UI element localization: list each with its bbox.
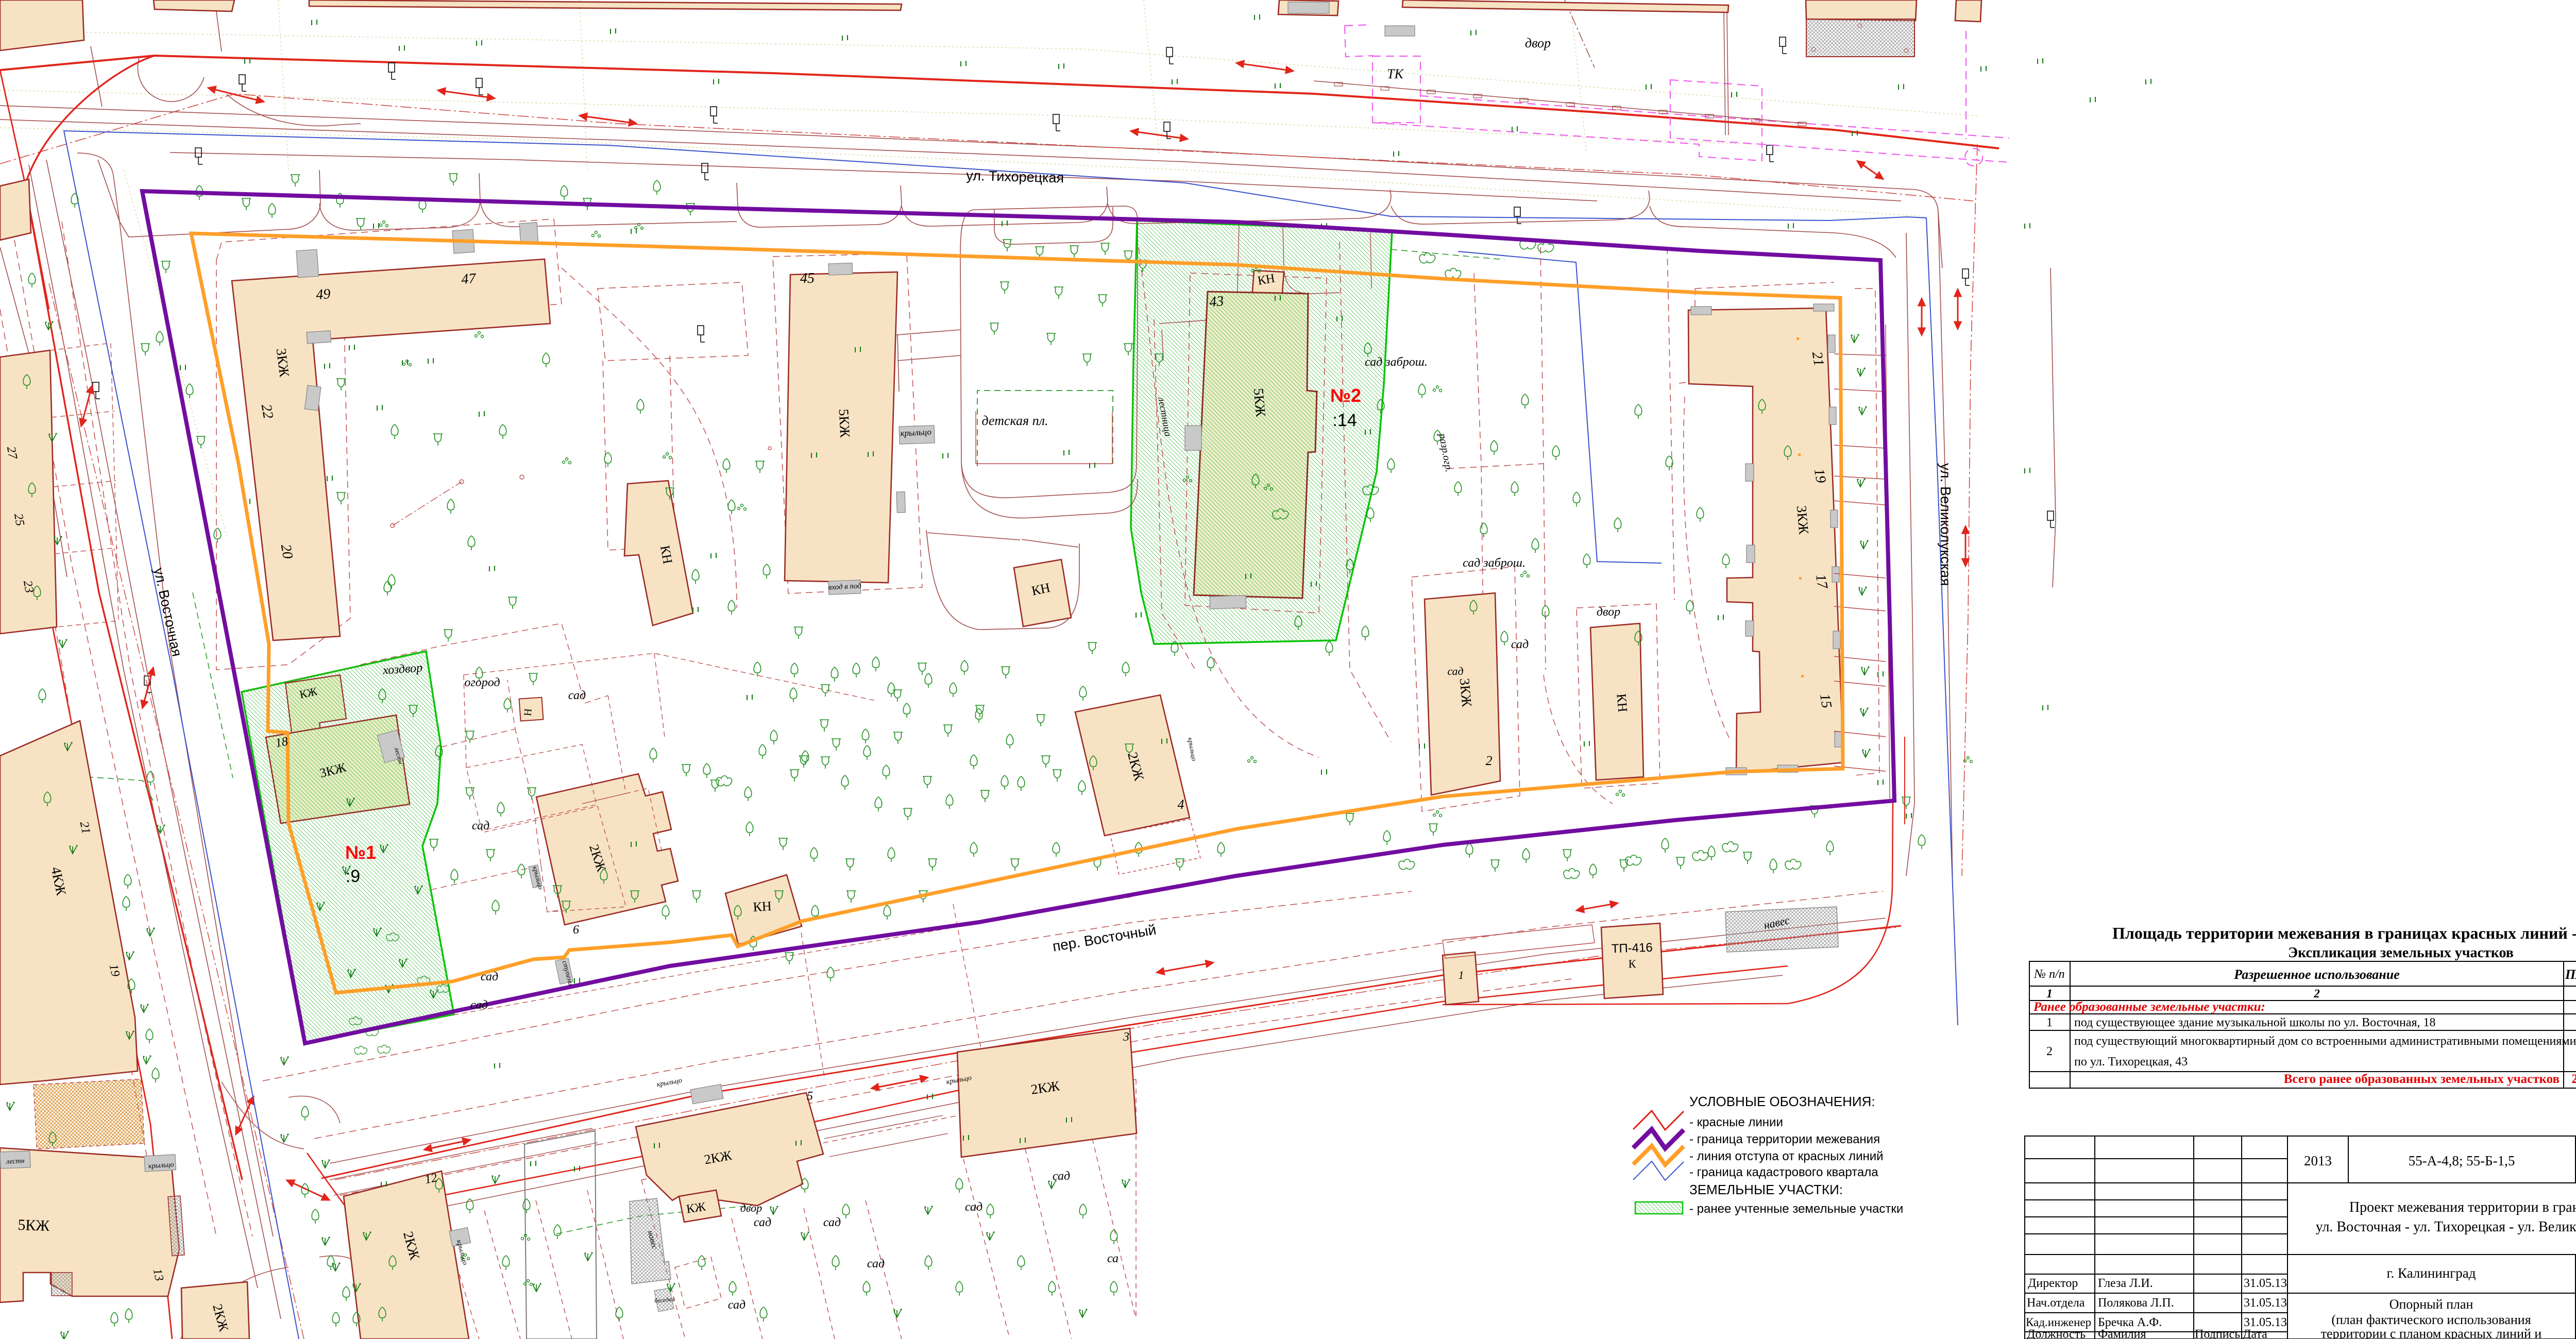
svg-text::14: :14: [1332, 411, 1357, 430]
svg-text:31.05.13: 31.05.13: [2244, 1296, 2287, 1310]
svg-text:ТК: ТК: [1387, 66, 1404, 81]
svg-text:5: 5: [807, 1090, 813, 1103]
svg-text:1: 1: [2046, 987, 2053, 1000]
svg-text:Полякова Л.П.: Полякова Л.П.: [2098, 1296, 2174, 1310]
svg-text:сад: сад: [728, 1298, 745, 1312]
svg-text:ул. Тихорецкая: ул. Тихорецкая: [966, 168, 1064, 186]
svg-text:3КЖ: 3КЖ: [1794, 505, 1812, 535]
svg-text:Экспликация земельных участков: Экспликация земельных участков: [2288, 945, 2514, 961]
svg-text:Глеза Л.И.: Глеза Л.И.: [2098, 1277, 2153, 1290]
svg-text:Нач.отдела: Нач.отдела: [2027, 1296, 2085, 1310]
svg-text:г. Калининград: г. Калининград: [2387, 1265, 2476, 1281]
svg-text:сад: сад: [568, 689, 586, 702]
svg-text:Площадь: Площадь: [2565, 967, 2576, 982]
svg-text:15: 15: [1817, 692, 1835, 709]
svg-text:3: 3: [1123, 1030, 1129, 1044]
svg-text:1: 1: [2046, 1016, 2053, 1029]
svg-text:КЖ: КЖ: [686, 1200, 707, 1216]
svg-text:Кад.инженер: Кад.инженер: [2026, 1316, 2091, 1329]
svg-text:Должность: Должность: [2027, 1328, 2086, 1339]
svg-text:19: 19: [1811, 467, 1829, 484]
svg-text:2: 2: [1486, 753, 1493, 768]
svg-text:5КЖ: 5КЖ: [18, 1216, 50, 1234]
svg-text:по ул. Тихорецкая, 43: по ул. Тихорецкая, 43: [2074, 1055, 2188, 1069]
svg-text:сад: сад: [1053, 1169, 1070, 1183]
svg-text:ЗЕМЕЛЬНЫЕ УЧАСТКИ:: ЗЕМЕЛЬНЫЕ УЧАСТКИ:: [1689, 1182, 1843, 1197]
svg-text:- красные линии: - красные линии: [1689, 1115, 1783, 1129]
svg-text:3КЖ: 3КЖ: [1457, 677, 1475, 708]
svg-text:ул. Великолукская: ул. Великолукская: [1938, 463, 1954, 586]
svg-text:Разрешенное использование: Разрешенное использование: [2233, 967, 2399, 982]
svg-text:23: 23: [21, 580, 36, 594]
svg-text:2013: 2013: [2304, 1153, 2332, 1168]
svg-text:6: 6: [573, 923, 579, 937]
svg-text:ТП-416: ТП-416: [1611, 941, 1653, 956]
svg-text:43: 43: [1209, 293, 1225, 310]
svg-text:31.05.13: 31.05.13: [2244, 1277, 2287, 1290]
svg-text:Площадь территории межевания в: Площадь территории межевания в границах …: [2112, 924, 2576, 942]
svg-text:- граница территории межевания: - граница территории межевания: [1689, 1132, 1880, 1146]
svg-text:хоздвор: хоздвор: [382, 661, 423, 677]
svg-text:Проект межевания территории в: Проект межевания территории в границах к…: [2349, 1199, 2576, 1215]
svg-text:двор: двор: [740, 1201, 762, 1214]
svg-text:№1: №1: [345, 842, 376, 863]
svg-text:сад: сад: [867, 1257, 885, 1270]
svg-text:21: 21: [1809, 350, 1827, 367]
svg-text:под существующий многоквартирн: под существующий многоквартирный дом со …: [2074, 1035, 2576, 1048]
svg-text:детская пл.: детская пл.: [982, 413, 1048, 428]
svg-text:КН: КН: [1614, 693, 1630, 713]
svg-text:4: 4: [1178, 797, 1184, 812]
svg-text:са: са: [1107, 1252, 1118, 1265]
svg-text:Директор: Директор: [2028, 1277, 2078, 1290]
svg-text:5КЖ: 5КЖ: [836, 409, 853, 438]
svg-text:сад заброш.: сад заброш.: [1463, 556, 1526, 570]
svg-text:крыльцо: крыльцо: [900, 427, 931, 438]
svg-text:45: 45: [800, 270, 815, 286]
svg-text:двор: двор: [1597, 605, 1620, 619]
svg-text:территории с планом красных ли: территории с планом красных линий и: [2321, 1326, 2542, 1339]
svg-text:огород: огород: [464, 676, 500, 689]
svg-text:КН: КН: [753, 899, 772, 914]
svg-text:двор: двор: [1525, 36, 1551, 50]
svg-text:К: К: [1629, 957, 1636, 970]
svg-text:49: 49: [315, 286, 331, 303]
svg-text:20: 20: [278, 543, 296, 560]
svg-text:Опорный план: Опорный план: [2389, 1297, 2473, 1312]
svg-text:25: 25: [11, 513, 27, 527]
svg-text:под существующее здание музыка: под существующее здание музыкальной школ…: [2074, 1016, 2436, 1029]
svg-text:- граница кадастрового квартал: - граница кадастрового квартала: [1689, 1165, 1878, 1179]
svg-text:47: 47: [461, 270, 477, 287]
svg-text:(план фактического использован: (план фактического использования: [2331, 1312, 2531, 1327]
svg-text:УСЛОВНЫЕ ОБОЗНАЧЕНИЯ:: УСЛОВНЫЕ ОБОЗНАЧЕНИЯ:: [1689, 1094, 1875, 1109]
svg-text:2: 2: [2046, 1045, 2053, 1058]
svg-text:№2: №2: [1330, 385, 1361, 406]
svg-text:Фамилия: Фамилия: [2098, 1328, 2146, 1339]
svg-text:22: 22: [258, 403, 276, 420]
svg-text:18: 18: [275, 735, 289, 750]
svg-text:сад: сад: [754, 1216, 771, 1229]
svg-text::9: :9: [346, 867, 360, 886]
svg-text:55-А-4,8; 55-Б-1,5: 55-А-4,8; 55-Б-1,5: [2409, 1153, 2515, 1168]
svg-text:сад: сад: [1447, 665, 1463, 677]
svg-text:2422.00: 2422.00: [2571, 1072, 2576, 1086]
svg-text:№ п/п: № п/п: [2033, 968, 2064, 981]
svg-text:сад: сад: [481, 970, 498, 984]
svg-text:2: 2: [2313, 987, 2320, 1000]
svg-text:Н: Н: [522, 708, 534, 716]
svg-text:вход в под: вход в под: [828, 582, 861, 591]
svg-text:Дата: Дата: [2243, 1328, 2267, 1339]
svg-text:- ранее учтенные земельные уча: - ранее учтенные земельные участки: [1689, 1202, 1903, 1216]
svg-text:сад: сад: [823, 1216, 841, 1229]
svg-text:сад: сад: [1511, 638, 1529, 651]
svg-text:сад: сад: [470, 998, 488, 1012]
svg-text:Всего ранее образованных земел: Всего ранее образованных земельных участ…: [2284, 1072, 2560, 1086]
svg-text:1: 1: [1459, 969, 1464, 981]
svg-text:сад: сад: [965, 1200, 982, 1214]
svg-text:сад: сад: [472, 819, 489, 833]
svg-text:лестн: лестн: [6, 1157, 25, 1166]
svg-text:5КЖ: 5КЖ: [1251, 387, 1269, 418]
svg-text:Подпись: Подпись: [2195, 1328, 2240, 1339]
svg-text:сад заброш.: сад заброш.: [1365, 355, 1428, 369]
svg-text:ул. Восточная - ул. Тихорецкая: ул. Восточная - ул. Тихорецкая - ул. Вел…: [2316, 1219, 2576, 1235]
svg-text:- линия отступа от красных лин: - линия отступа от красных линий: [1689, 1149, 1884, 1163]
svg-text:Ранее образованные земельные у: Ранее образованные земельные участки:: [2033, 1000, 2265, 1014]
